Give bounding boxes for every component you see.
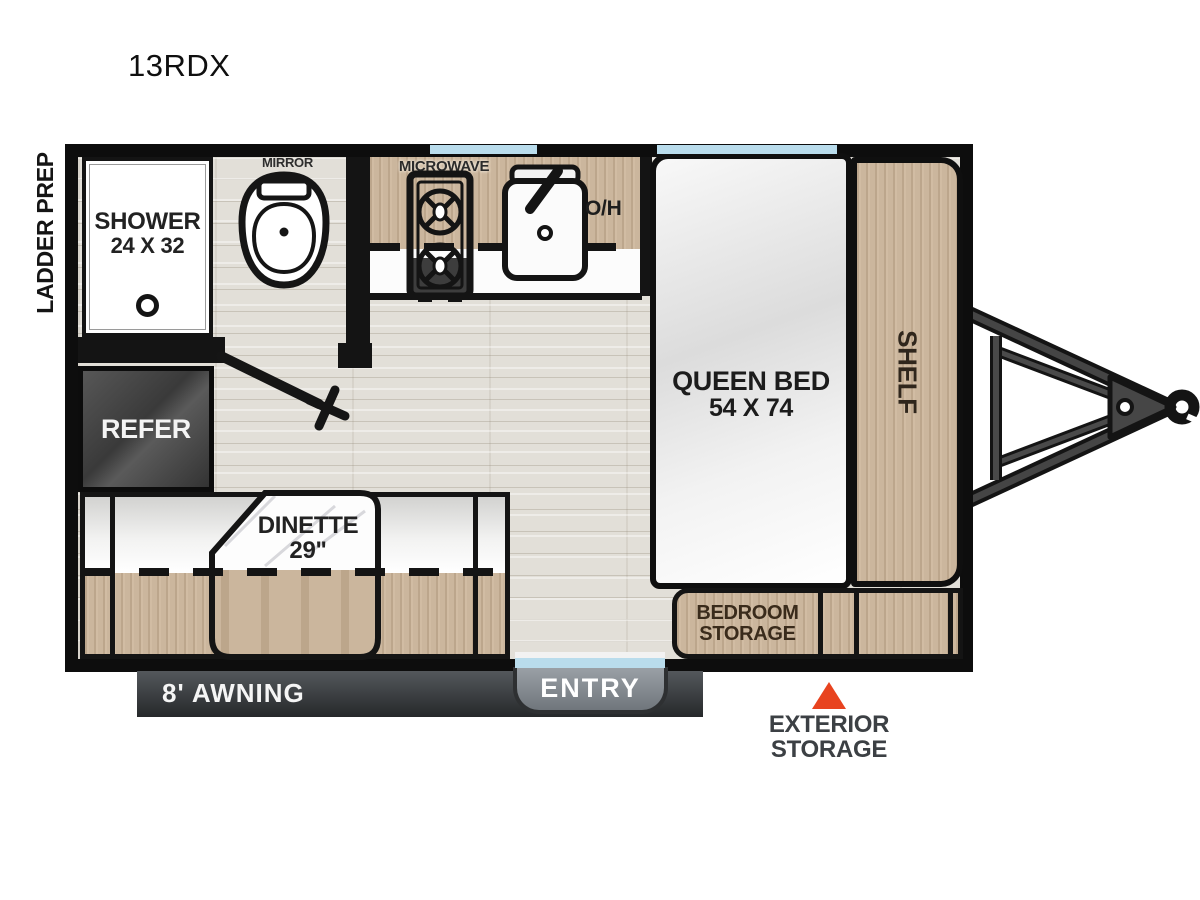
entry-window-strip: [515, 658, 665, 668]
storage-divider: [948, 593, 953, 654]
shelf: SHELF: [851, 157, 963, 587]
refer-label: REFER: [101, 415, 191, 443]
bedroom-storage-box: BEDROOM STORAGE: [677, 593, 818, 654]
shower: SHOWER 24 X 32: [82, 157, 213, 337]
bedroom-storage-label-line1: BEDROOM: [696, 603, 798, 624]
ladder-prep-label: LADDER PREP: [33, 148, 59, 318]
refer: REFER: [78, 366, 214, 492]
exterior-storage-label: EXTERIOR STORAGE: [754, 712, 904, 762]
bedroom-storage-row: BEDROOM STORAGE: [672, 588, 963, 659]
storage-divider: [818, 593, 823, 654]
shower-size-label: 24 X 32: [86, 234, 209, 257]
exterior-storage-label-line2: STORAGE: [754, 737, 904, 762]
oh-label: O/H: [585, 198, 621, 220]
sink-icon: [500, 163, 590, 283]
floorplan-canvas: 13RDX LADDER PREP SHOWER 24 X 32 MIRROR: [0, 0, 1200, 900]
mirror-label: MIRROR: [250, 156, 325, 170]
dinette-dashed-line: [85, 568, 508, 576]
shelf-label: SHELF: [893, 330, 920, 414]
window-strip-bedroom: [657, 145, 837, 154]
bathroom-door-swing-icon: [215, 348, 360, 433]
wall-below-shower: [78, 337, 225, 363]
storage-divider: [854, 593, 859, 654]
hitch-icon: [958, 288, 1200, 523]
toilet-icon: [237, 168, 331, 292]
stove-icon: [406, 170, 474, 303]
bathroom-wall: [346, 157, 370, 343]
dinette-label: DINETTE: [248, 513, 368, 538]
shower-label: SHOWER: [86, 209, 209, 234]
queen-bed-size-label: 54 X 74: [656, 395, 846, 421]
shower-drain-icon: [136, 294, 159, 317]
page-title: 13RDX: [128, 50, 230, 83]
dinette-size-label: 29": [248, 538, 368, 563]
bedroom-storage-label-line2: STORAGE: [699, 624, 795, 645]
entry-label: ENTRY: [540, 674, 641, 702]
queen-bed: QUEEN BED 54 X 74: [650, 153, 852, 589]
queen-bed-label: QUEEN BED: [656, 367, 846, 395]
exterior-storage-label-line1: EXTERIOR: [754, 712, 904, 737]
exterior-storage-marker-icon: [812, 682, 846, 709]
window-strip-kitchen: [430, 145, 537, 154]
entry-tab: ENTRY: [513, 667, 668, 714]
